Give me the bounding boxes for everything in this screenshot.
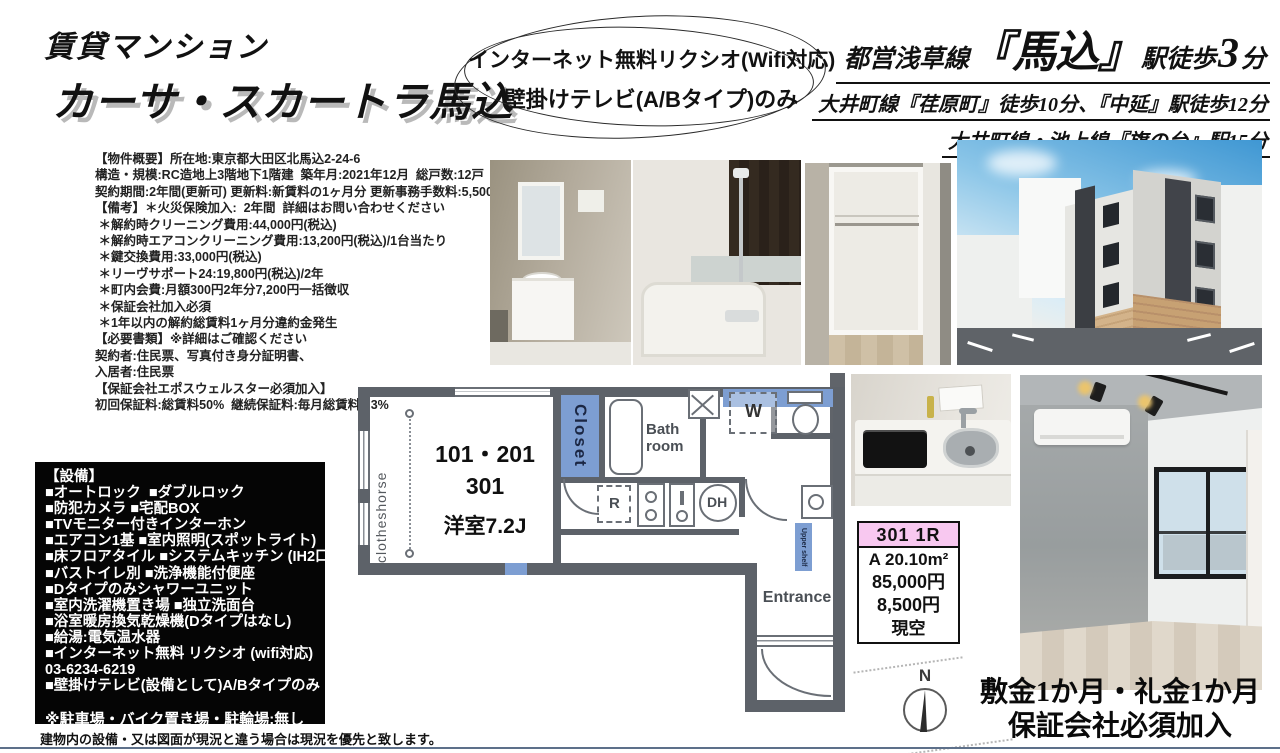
unit-number-301: 301 bbox=[410, 473, 560, 500]
room-door-frame bbox=[1246, 430, 1262, 640]
photo-room-interior bbox=[1020, 375, 1262, 690]
deposit-key-money-line: 敷金1か月・礼金1か月 bbox=[965, 676, 1275, 710]
deposit-terms: 敷金1か月・礼金1か月 保証会社必須加入 bbox=[965, 676, 1275, 744]
kitchen-cabinet bbox=[855, 474, 1011, 506]
unit-type-header: 301 1R bbox=[859, 523, 958, 548]
compass-needle bbox=[920, 690, 927, 732]
clotheshorse-hook bbox=[405, 409, 414, 418]
equipment-line: ■給湯:電気温水器 bbox=[45, 630, 315, 646]
compass: N bbox=[893, 664, 957, 752]
access-line-1: 都営浅草線『馬込』駅徒歩3分 bbox=[836, 16, 1270, 84]
floorplan-window bbox=[455, 387, 550, 397]
dh-symbol: DH bbox=[699, 484, 737, 522]
kitchen-faucet-spout bbox=[959, 408, 977, 414]
toilet-bowl bbox=[792, 404, 819, 435]
clotheshorse-hook bbox=[405, 549, 414, 558]
overview-line: 構造・規模:RC造地上3階地下1階建 築年月:2021年12月 総戸数:12戸 bbox=[95, 167, 505, 183]
cloud bbox=[987, 150, 1057, 176]
closet-door bbox=[923, 163, 951, 365]
highlight-internet-line: インターネット無料リクシオ(Wifi対応) bbox=[468, 44, 816, 74]
equipment-line: ■浴室暖房換気乾燥機(Dタイプはなし) bbox=[45, 614, 315, 630]
highlight-tv-line: 壁掛けテレビ(A/Bタイプ)のみ bbox=[486, 82, 816, 114]
floorplan-wall bbox=[745, 563, 757, 712]
property-overview: 【物件概要】所在地:東京都大田区北馬込2-24-6 構造・規模:RC造地上3階地… bbox=[95, 151, 505, 414]
floorplan-partition bbox=[553, 529, 739, 535]
closet-left-wall bbox=[805, 163, 829, 365]
upper-shelf: Upper shelf bbox=[795, 523, 812, 571]
equipment-line: ■室内洗濯機置き場 ■独立洗面台 bbox=[45, 598, 315, 614]
equipment-line: ■バストイレ別 ■洗浄機能付便座 bbox=[45, 566, 315, 582]
sink-drain bbox=[965, 446, 975, 456]
building-window bbox=[1195, 195, 1215, 224]
bathtub-symbol bbox=[609, 399, 643, 475]
faucet-symbol bbox=[680, 491, 684, 505]
building-window bbox=[1195, 241, 1215, 270]
overview-line: ＊解約時クリーニング費用:44,000円(税込) bbox=[95, 217, 505, 233]
photo-kitchen bbox=[851, 374, 1011, 506]
vanity-mirror bbox=[518, 182, 564, 260]
bath-controls bbox=[725, 310, 759, 322]
burner bbox=[645, 491, 657, 503]
access-line1-prefix: 都営浅草線 bbox=[844, 46, 969, 73]
rental-flyer: 賃貸マンション カーサ・スカートラ馬込 インターネット無料リクシオ(Wifi対応… bbox=[0, 0, 1280, 753]
vacancy-status: 現空 bbox=[859, 617, 958, 640]
feature-highlight: インターネット無料リクシオ(Wifi対応) 壁掛けテレビ(A/Bタイプ)のみ bbox=[468, 30, 816, 122]
entrance-door-swing bbox=[761, 649, 831, 697]
closet-floor bbox=[829, 335, 923, 365]
door-swing bbox=[563, 479, 599, 515]
bath-mirror bbox=[691, 256, 801, 282]
equipment-line: 【設備】 bbox=[45, 469, 315, 485]
shower-head bbox=[733, 168, 749, 178]
room-size-label: 洋室7.2J bbox=[410, 510, 560, 540]
photo-building-exterior bbox=[957, 140, 1262, 365]
overview-line: ＊1年以内の解約総賃料1ヶ月分違約金発生 bbox=[95, 315, 505, 331]
air-conditioner-vent bbox=[1040, 435, 1124, 439]
overview-line: 【必要書類】※詳細はご確認ください bbox=[95, 331, 505, 347]
spotlight-glow bbox=[1138, 395, 1152, 409]
stove-symbol bbox=[637, 483, 665, 527]
kitchen-bottle bbox=[927, 396, 934, 418]
rent-amount: 85,000円 bbox=[859, 571, 958, 594]
closet-area: Closet bbox=[561, 395, 599, 477]
floor-plan: clotheshorse 101・201 301 洋室7.2J Closet B… bbox=[355, 383, 847, 715]
photo-vanity bbox=[490, 160, 631, 365]
closet-interior bbox=[829, 167, 923, 335]
floorplan-partition bbox=[599, 397, 605, 477]
refrigerator-label: R bbox=[609, 495, 620, 512]
photo-bathroom bbox=[633, 160, 801, 365]
building-dark-panel-left bbox=[1075, 186, 1095, 341]
access-line1-mid: 駅徒歩 bbox=[1141, 46, 1216, 73]
overview-line: ＊リーヴサポート24:19,800円(税込)/2年 bbox=[95, 266, 505, 282]
floorplan-blue-tick bbox=[505, 563, 527, 575]
washer-label: W bbox=[745, 401, 762, 422]
vanity-floor bbox=[490, 342, 631, 365]
building-window bbox=[1103, 202, 1119, 228]
toilet-tank bbox=[787, 391, 823, 404]
unit-numbers-101-201: 101・201 bbox=[410, 435, 560, 469]
disclaimer-footnote: 建物内の設備・又は図面が現況と違う場合は現況を優先と致します。 bbox=[40, 729, 442, 748]
room-window bbox=[1154, 467, 1258, 579]
shaft-symbol bbox=[688, 389, 720, 419]
bottom-rule bbox=[0, 747, 1280, 749]
kitchen-sink-symbol bbox=[669, 483, 695, 527]
overview-line: ＊保証会社加入必須 bbox=[95, 299, 505, 315]
access-line1-suffix: 分 bbox=[1241, 46, 1266, 73]
vanity-wall-panel bbox=[578, 190, 604, 212]
unit-area: A 20.10m² bbox=[859, 548, 958, 571]
equipment-line: ■床フロアタイル ■システムキッチン (IH2口) bbox=[45, 549, 315, 565]
floorplan-partition bbox=[739, 477, 745, 517]
building-window bbox=[1103, 282, 1119, 308]
overview-line: 入居者:住民票 bbox=[95, 364, 505, 380]
overview-line: ＊鍵交換費用:33,000円(税込) bbox=[95, 249, 505, 265]
overview-line: 契約期間:2年間(更新可) 更新料:新賃料の1ヶ月分 更新事務手数料:5,500… bbox=[95, 184, 505, 200]
window-mullion bbox=[1206, 472, 1210, 574]
price-card: 301 1R A 20.10m² 85,000円 8,500円 現空 bbox=[857, 521, 960, 644]
equipment-box: 【設備】 ■オートロック ■ダブルロック ■防犯カメラ ■宅配BOX ■TVモニ… bbox=[35, 462, 325, 724]
burner bbox=[645, 509, 657, 521]
property-name-title: カーサ・スカートラ馬込 bbox=[52, 68, 513, 128]
building-dark-panel-right bbox=[1165, 178, 1191, 312]
guarantor-company-line: 保証会社必須加入 bbox=[965, 710, 1275, 744]
station-access: 都営浅草線『馬込』駅徒歩3分 大井町線『荏原町』徒歩10分、『中延』駅徒歩12分… bbox=[770, 16, 1270, 158]
equipment-line: ■インターネット無料 リクシオ (wifi対応) bbox=[45, 646, 315, 662]
building-window bbox=[1103, 242, 1119, 268]
sink-bowl bbox=[676, 510, 688, 522]
equipment-line: ■TVモニター付きインターホン bbox=[45, 517, 315, 533]
equipment-line: ■Dタイプのみシャワーユニット bbox=[45, 582, 315, 598]
bathroom-label: Bath room bbox=[646, 421, 704, 455]
overview-line: ＊町内会費:月額300円2年分7,200円一括徴収 bbox=[95, 282, 505, 298]
floorplan-window bbox=[358, 431, 370, 489]
equipment-line: ■防犯カメラ ■宅配BOX bbox=[45, 501, 315, 517]
no-parking-note: ※駐車場・バイク置き場・駐輪場:無し bbox=[45, 708, 315, 729]
road bbox=[957, 328, 1262, 365]
closet-hanger-rod bbox=[835, 223, 919, 226]
entrance-label: Entrance bbox=[760, 589, 834, 607]
overview-line: ＊解約時エアコンクリーニング費用:13,200円(税込)/1台当たり bbox=[95, 233, 505, 249]
access-line-2: 大井町線『荏原町』徒歩10分、『中延』駅徒歩12分 bbox=[812, 88, 1270, 121]
door-swing bbox=[745, 479, 787, 521]
compass-north-label: N bbox=[893, 666, 957, 686]
overview-line: 【物件概要】所在地:東京都大田区北馬込2-24-6 bbox=[95, 151, 505, 167]
shower-rod bbox=[739, 174, 743, 282]
flyer-category-title: 賃貸マンション bbox=[44, 22, 268, 66]
clotheshorse-label: clotheshorse bbox=[373, 411, 389, 563]
basin-bowl bbox=[808, 494, 824, 510]
equipment-line: ■オートロック ■ダブルロック bbox=[45, 485, 315, 501]
equipment-line: ■壁掛けテレビ(設備として)A/Bタイプのみ bbox=[45, 678, 315, 694]
floorplan-window bbox=[358, 503, 370, 545]
floorplan-wall bbox=[833, 387, 845, 712]
kitchen-faucet bbox=[961, 412, 966, 428]
floorplan-wall bbox=[358, 563, 750, 575]
air-conditioner bbox=[1034, 409, 1130, 445]
ih-cooktop bbox=[863, 430, 927, 468]
management-fee: 8,500円 bbox=[859, 594, 958, 617]
spotlight-glow bbox=[1078, 381, 1092, 395]
equipment-phone: 03-6234-6219 bbox=[45, 662, 315, 678]
equipment-line: ■エアコン1基 ■室内照明(スポットライト) bbox=[45, 533, 315, 549]
dh-label: DH bbox=[707, 494, 727, 510]
closet-shelf bbox=[835, 215, 919, 217]
access-station-name: 『馬込』 bbox=[969, 28, 1141, 77]
overview-line: 【備考】＊火災保険加入: 2年間 詳細はお問い合わせください bbox=[95, 200, 505, 216]
access-walk-minutes: 3 bbox=[1216, 31, 1241, 77]
entrance-step bbox=[757, 635, 833, 647]
vanity-cabinet bbox=[512, 278, 574, 340]
washbasin-symbol bbox=[801, 485, 833, 519]
photo-closet bbox=[805, 163, 951, 365]
overview-line: 契約者:住民票、写真付き身分証明書、 bbox=[95, 348, 505, 364]
floorplan-wall bbox=[745, 700, 845, 712]
